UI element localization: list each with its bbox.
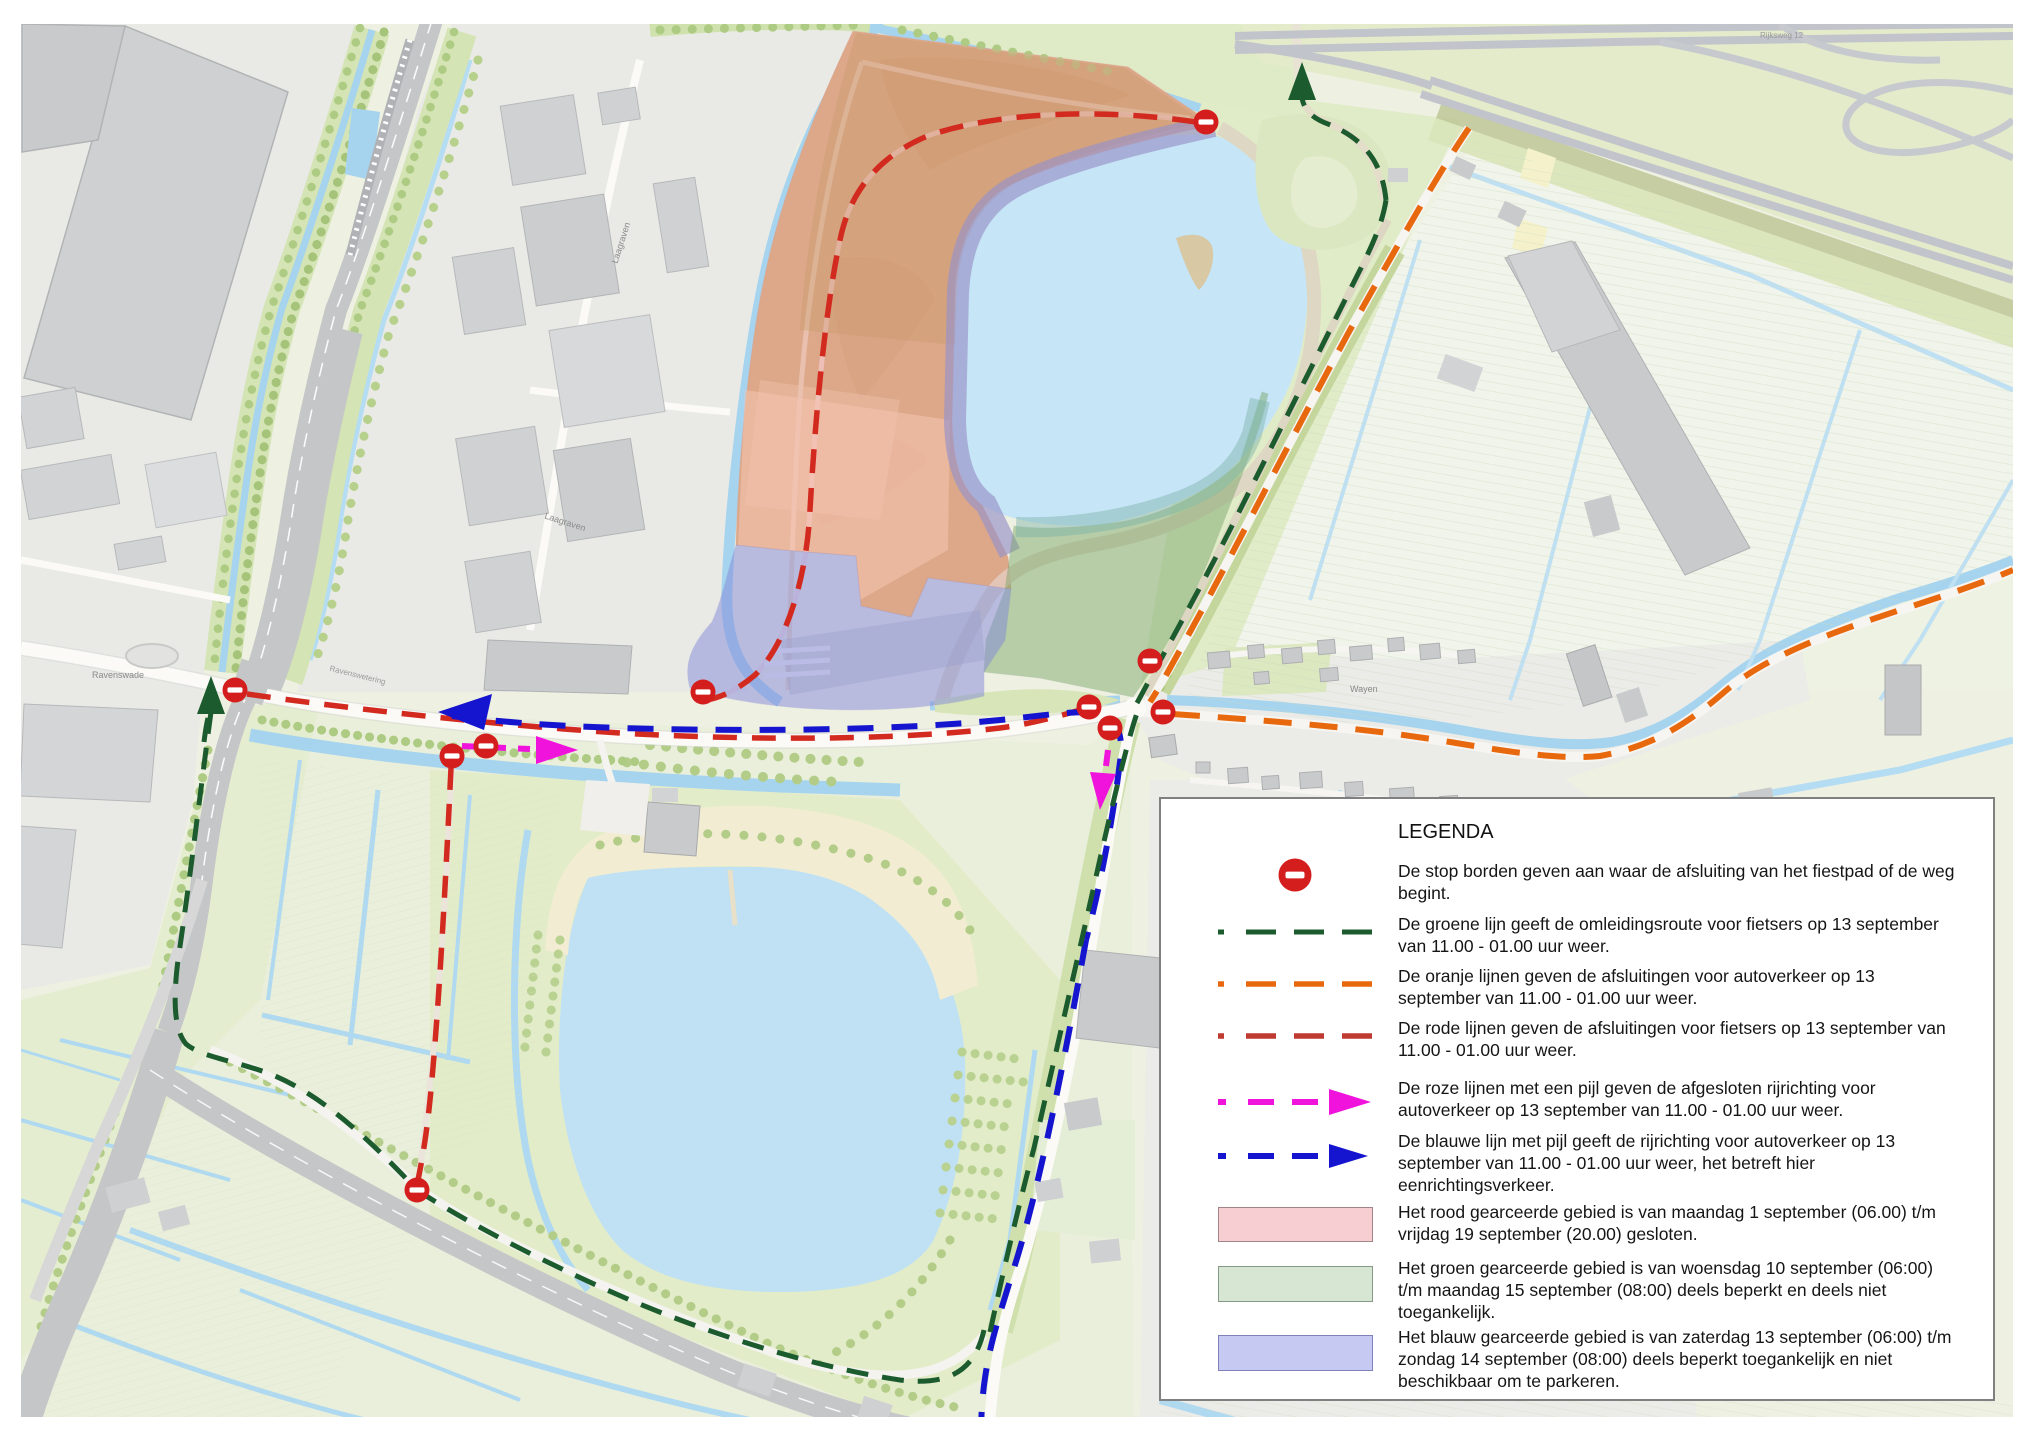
svg-text:Ravenswade: Ravenswade xyxy=(92,670,144,680)
svg-text:Rijksweg 12: Rijksweg 12 xyxy=(1760,31,1804,40)
svg-text:Wayen: Wayen xyxy=(1350,684,1378,694)
